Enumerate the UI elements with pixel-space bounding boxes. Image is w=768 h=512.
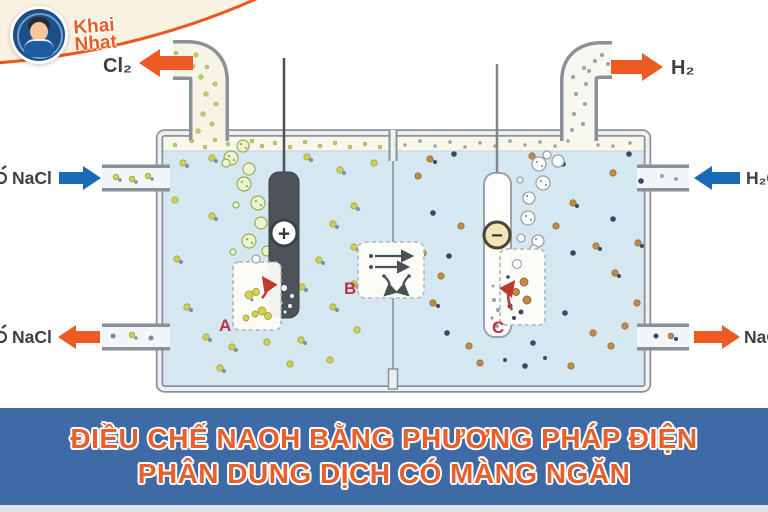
brand-name: Khai Nhat [73, 17, 118, 54]
brine-out-arrow [58, 325, 100, 349]
brand-name-line2: Nhat [74, 34, 117, 54]
hydrogen-gas-label: H₂ [671, 57, 694, 79]
page: + − A [0, 0, 768, 512]
title-line2: PHÂN DUNG DỊCH CÓ MÀNG NGĂN [138, 458, 631, 490]
water-in-arrow [694, 166, 740, 190]
brine-inlet-label: NaCl [12, 168, 52, 188]
clipped-text-fragment [0, 166, 6, 342]
water-inlet-label: H₂O [746, 168, 768, 188]
hydrogen-out-arrow [611, 53, 663, 81]
brand-logo: Khai Nhat [10, 6, 116, 64]
chlorine-outlet-pipe [173, 60, 209, 141]
anode-sign: + [278, 223, 290, 246]
brine-in-arrow [59, 166, 101, 190]
inset-c-label: C [492, 318, 504, 337]
brand-logo-icon [10, 6, 68, 64]
naoh-out-arrow [694, 325, 740, 349]
bottom-strip [0, 505, 768, 512]
naoh-outlet-label: NaOH [744, 327, 768, 347]
inset-b-label: B [344, 279, 356, 298]
inset-a-label: A [219, 316, 231, 335]
title-line1: ĐIỀU CHẾ NAOH BẰNG PHƯƠNG PHÁP ĐIỆN [70, 423, 697, 455]
hydrogen-outlet-pipe [579, 60, 612, 141]
cathode-sign: − [491, 225, 503, 247]
logo-body [24, 39, 54, 57]
brine-outlet-label: NaCl [12, 327, 52, 347]
title-banner: ĐIỀU CHẾ NAOH BẰNG PHƯƠNG PHÁP ĐIỆN PHÂN… [0, 408, 768, 505]
